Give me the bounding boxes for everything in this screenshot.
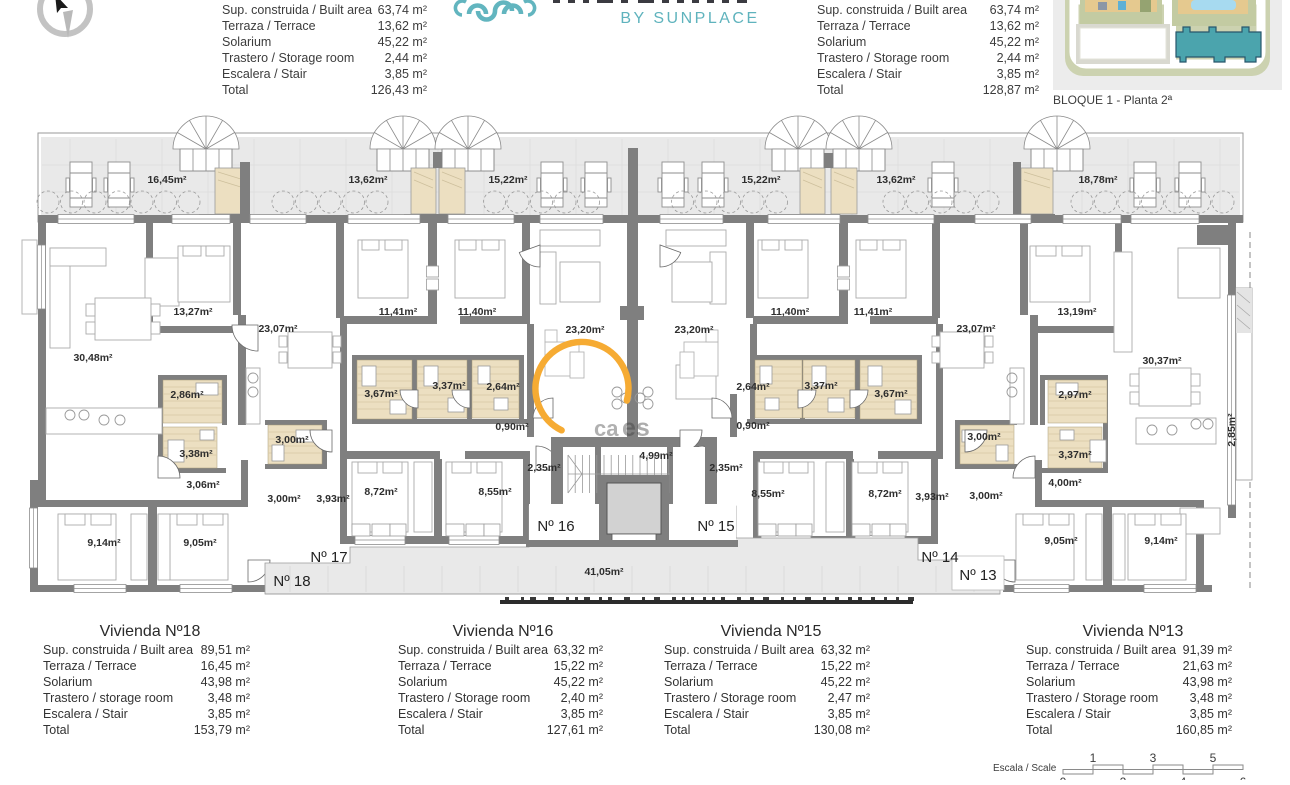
svg-text:Total: Total xyxy=(222,83,248,97)
svg-text:63,74 m²: 63,74 m² xyxy=(378,3,427,17)
svg-text:3,48 m²: 3,48 m² xyxy=(1190,691,1232,705)
svg-text:Terraza / Terrace: Terraza / Terrace xyxy=(398,659,492,673)
svg-text:11,40m²: 11,40m² xyxy=(771,306,810,318)
svg-text:2,97m²: 2,97m² xyxy=(1058,389,1092,401)
svg-text:4,99m²: 4,99m² xyxy=(639,450,673,462)
svg-text:Sup. construida / Built area: Sup. construida / Built area xyxy=(1026,643,1176,657)
svg-text:160,85 m²: 160,85 m² xyxy=(1176,723,1232,737)
svg-text:45,22 m²: 45,22 m² xyxy=(554,675,603,689)
svg-text:4: 4 xyxy=(1180,775,1187,780)
svg-text:Trastero / Storage room: Trastero / Storage room xyxy=(817,51,949,65)
svg-text:Nº 17: Nº 17 xyxy=(310,549,347,566)
svg-text:15,22m²: 15,22m² xyxy=(488,174,528,186)
svg-text:Escalera / Stair: Escalera / Stair xyxy=(222,67,307,81)
svg-text:0,90m²: 0,90m² xyxy=(736,420,770,432)
svg-text:23,20m²: 23,20m² xyxy=(674,324,714,336)
svg-text:Trastero / Storage room: Trastero / Storage room xyxy=(664,691,796,705)
svg-text:Vivienda Nº18: Vivienda Nº18 xyxy=(100,623,201,640)
svg-text:3,85 m²: 3,85 m² xyxy=(385,67,427,81)
svg-text:13,27m²: 13,27m² xyxy=(173,306,213,318)
svg-text:0: 0 xyxy=(1060,775,1067,780)
svg-text:23,07m²: 23,07m² xyxy=(258,323,298,335)
svg-text:8,72m²: 8,72m² xyxy=(364,486,398,498)
svg-text:3,93m²: 3,93m² xyxy=(915,491,949,503)
svg-text:Sup. construida / Built area: Sup. construida / Built area xyxy=(398,643,548,657)
svg-text:30,37m²: 30,37m² xyxy=(1142,355,1182,367)
svg-text:Vivienda Nº16: Vivienda Nº16 xyxy=(453,623,554,640)
svg-text:21,63 m²: 21,63 m² xyxy=(1183,659,1232,673)
svg-text:11,41m²: 11,41m² xyxy=(854,306,893,318)
svg-text:3,93m²: 3,93m² xyxy=(316,493,350,505)
svg-text:Solarium: Solarium xyxy=(398,675,447,689)
svg-text:Nº 13: Nº 13 xyxy=(959,567,996,584)
svg-text:13,62 m²: 13,62 m² xyxy=(378,19,427,33)
svg-text:ca: ca xyxy=(594,416,619,441)
svg-text:Total: Total xyxy=(43,723,69,737)
svg-text:3,37m²: 3,37m² xyxy=(432,380,466,392)
svg-text:Escalera / Stair: Escalera / Stair xyxy=(398,707,483,721)
svg-text:Trastero / Storage room: Trastero / Storage room xyxy=(222,51,354,65)
svg-text:Sup. construida / Built area: Sup. construida / Built area xyxy=(222,3,372,17)
svg-text:128,87 m²: 128,87 m² xyxy=(983,83,1039,97)
svg-text:Total: Total xyxy=(1026,723,1052,737)
svg-text:8,55m²: 8,55m² xyxy=(478,486,512,498)
svg-text:18,78m²: 18,78m² xyxy=(1078,174,1118,186)
svg-text:2,85m²: 2,85m² xyxy=(1226,413,1238,447)
svg-text:2,64m²: 2,64m² xyxy=(486,381,520,393)
svg-text:130,08 m²: 130,08 m² xyxy=(814,723,870,737)
svg-text:30,48m²: 30,48m² xyxy=(73,352,113,364)
svg-text:3,85 m²: 3,85 m² xyxy=(997,67,1039,81)
svg-text:5: 5 xyxy=(1210,751,1217,765)
svg-text:3,00m²: 3,00m² xyxy=(967,431,1001,443)
svg-text:Nº 16: Nº 16 xyxy=(537,518,574,535)
svg-text:Sup. construida / Built area: Sup. construida / Built area xyxy=(43,643,193,657)
svg-text:Total: Total xyxy=(398,723,424,737)
svg-text:41,05m²: 41,05m² xyxy=(584,566,624,578)
svg-text:13,62m²: 13,62m² xyxy=(348,174,388,186)
svg-text:2: 2 xyxy=(1120,775,1127,780)
svg-text:45,22 m²: 45,22 m² xyxy=(378,35,427,49)
svg-text:153,79 m²: 153,79 m² xyxy=(194,723,250,737)
svg-text:9,05m²: 9,05m² xyxy=(1044,535,1078,547)
svg-text:3: 3 xyxy=(1150,751,1157,765)
svg-text:Solarium: Solarium xyxy=(817,35,866,49)
svg-text:Solarium: Solarium xyxy=(1026,675,1075,689)
svg-text:63,32 m²: 63,32 m² xyxy=(821,643,870,657)
svg-text:11,41m²: 11,41m² xyxy=(379,306,418,318)
svg-text:6: 6 xyxy=(1240,775,1247,780)
svg-text:2,86m²: 2,86m² xyxy=(170,389,204,401)
svg-text:Total: Total xyxy=(817,83,843,97)
svg-text:Terraza / Terrace: Terraza / Terrace xyxy=(664,659,758,673)
svg-text:3,06m²: 3,06m² xyxy=(186,479,220,491)
svg-text:2,44 m²: 2,44 m² xyxy=(385,51,427,65)
svg-text:Sup. construida / Built area: Sup. construida / Built area xyxy=(817,3,967,17)
svg-text:3,38m²: 3,38m² xyxy=(179,448,213,460)
svg-text:Nº 15: Nº 15 xyxy=(697,518,734,535)
svg-text:3,48 m²: 3,48 m² xyxy=(208,691,250,705)
svg-text:3,00m²: 3,00m² xyxy=(267,493,301,505)
svg-text:Escala / Scale: Escala / Scale xyxy=(993,763,1057,774)
svg-text:Trastero / Storage room: Trastero / Storage room xyxy=(398,691,530,705)
svg-text:8,72m²: 8,72m² xyxy=(868,488,902,500)
svg-text:3,37m²: 3,37m² xyxy=(804,380,838,392)
svg-text:23,07m²: 23,07m² xyxy=(956,323,996,335)
svg-text:BLOQUE 1 - Planta 2ª: BLOQUE 1 - Planta 2ª xyxy=(1053,93,1173,107)
svg-text:3,00m²: 3,00m² xyxy=(275,434,309,446)
svg-text:13,19m²: 13,19m² xyxy=(1057,306,1097,318)
svg-text:91,39 m²: 91,39 m² xyxy=(1183,643,1232,657)
svg-text:Nº 14: Nº 14 xyxy=(921,549,958,566)
svg-text:43,98 m²: 43,98 m² xyxy=(1183,675,1232,689)
svg-text:2,44 m²: 2,44 m² xyxy=(997,51,1039,65)
svg-text:Solarium: Solarium xyxy=(222,35,271,49)
svg-text:Terraza / Terrace: Terraza / Terrace xyxy=(1026,659,1120,673)
svg-text:Sup. construida / Built area: Sup. construida / Built area xyxy=(664,643,814,657)
svg-text:3,85 m²: 3,85 m² xyxy=(828,707,870,721)
svg-text:45,22 m²: 45,22 m² xyxy=(821,675,870,689)
svg-text:3,85 m²: 3,85 m² xyxy=(561,707,603,721)
svg-text:9,14m²: 9,14m² xyxy=(87,537,121,549)
svg-text:Terraza / Terrace: Terraza / Terrace xyxy=(817,19,911,33)
svg-text:2,64m²: 2,64m² xyxy=(736,381,770,393)
svg-text:Solarium: Solarium xyxy=(664,675,713,689)
svg-text:3,67m²: 3,67m² xyxy=(364,388,398,400)
svg-text:13,62m²: 13,62m² xyxy=(876,174,916,186)
svg-text:16,45 m²: 16,45 m² xyxy=(201,659,250,673)
svg-text:15,22 m²: 15,22 m² xyxy=(554,659,603,673)
svg-text:43,98 m²: 43,98 m² xyxy=(201,675,250,689)
svg-text:Trastero / storage room: Trastero / storage room xyxy=(43,691,173,705)
svg-text:3,67m²: 3,67m² xyxy=(874,388,908,400)
svg-text:15,22 m²: 15,22 m² xyxy=(821,659,870,673)
svg-text:3,85 m²: 3,85 m² xyxy=(1190,707,1232,721)
svg-text:Escalera / Stair: Escalera / Stair xyxy=(817,67,902,81)
svg-text:Terraza / Terrace: Terraza / Terrace xyxy=(43,659,137,673)
svg-text:BY SUNPLACE: BY SUNPLACE xyxy=(620,10,759,27)
svg-text:Total: Total xyxy=(664,723,690,737)
svg-text:Vivienda Nº13: Vivienda Nº13 xyxy=(1083,623,1184,640)
svg-text:8,55m²: 8,55m² xyxy=(751,488,785,500)
svg-text:16,45m²: 16,45m² xyxy=(147,174,187,186)
svg-text:Escalera / Stair: Escalera / Stair xyxy=(664,707,749,721)
svg-text:Terraza / Terrace: Terraza / Terrace xyxy=(222,19,316,33)
svg-text:4,00m²: 4,00m² xyxy=(1048,477,1082,489)
svg-text:Vivienda Nº15: Vivienda Nº15 xyxy=(721,623,822,640)
svg-text:Solarium: Solarium xyxy=(43,675,92,689)
svg-text:2,35m²: 2,35m² xyxy=(527,462,561,474)
svg-text:2,35m²: 2,35m² xyxy=(709,462,743,474)
svg-text:Nº 18: Nº 18 xyxy=(273,573,310,590)
svg-text:es: es xyxy=(622,414,650,442)
svg-text:2,40 m²: 2,40 m² xyxy=(561,691,603,705)
svg-text:0,90m²: 0,90m² xyxy=(495,421,529,433)
svg-text:15,22m²: 15,22m² xyxy=(741,174,781,186)
svg-text:23,20m²: 23,20m² xyxy=(565,324,605,336)
svg-text:3,37m²: 3,37m² xyxy=(1058,449,1092,461)
svg-text:13,62 m²: 13,62 m² xyxy=(990,19,1039,33)
svg-text:126,43 m²: 126,43 m² xyxy=(371,83,427,97)
svg-text:Trastero / Storage room: Trastero / Storage room xyxy=(1026,691,1158,705)
svg-text:9,05m²: 9,05m² xyxy=(183,537,217,549)
svg-text:3,00m²: 3,00m² xyxy=(969,490,1003,502)
svg-text:9,14m²: 9,14m² xyxy=(1144,535,1178,547)
svg-text:63,74 m²: 63,74 m² xyxy=(990,3,1039,17)
svg-text:63,32 m²: 63,32 m² xyxy=(554,643,603,657)
svg-text:11,40m²: 11,40m² xyxy=(458,306,497,318)
svg-text:Escalera / Stair: Escalera / Stair xyxy=(1026,707,1111,721)
svg-text:1: 1 xyxy=(1090,751,1097,765)
svg-text:Escalera / Stair: Escalera / Stair xyxy=(43,707,128,721)
svg-text:127,61 m²: 127,61 m² xyxy=(547,723,603,737)
svg-text:2,47 m²: 2,47 m² xyxy=(828,691,870,705)
svg-text:89,51 m²: 89,51 m² xyxy=(201,643,250,657)
svg-text:45,22 m²: 45,22 m² xyxy=(990,35,1039,49)
svg-text:3,85 m²: 3,85 m² xyxy=(208,707,250,721)
